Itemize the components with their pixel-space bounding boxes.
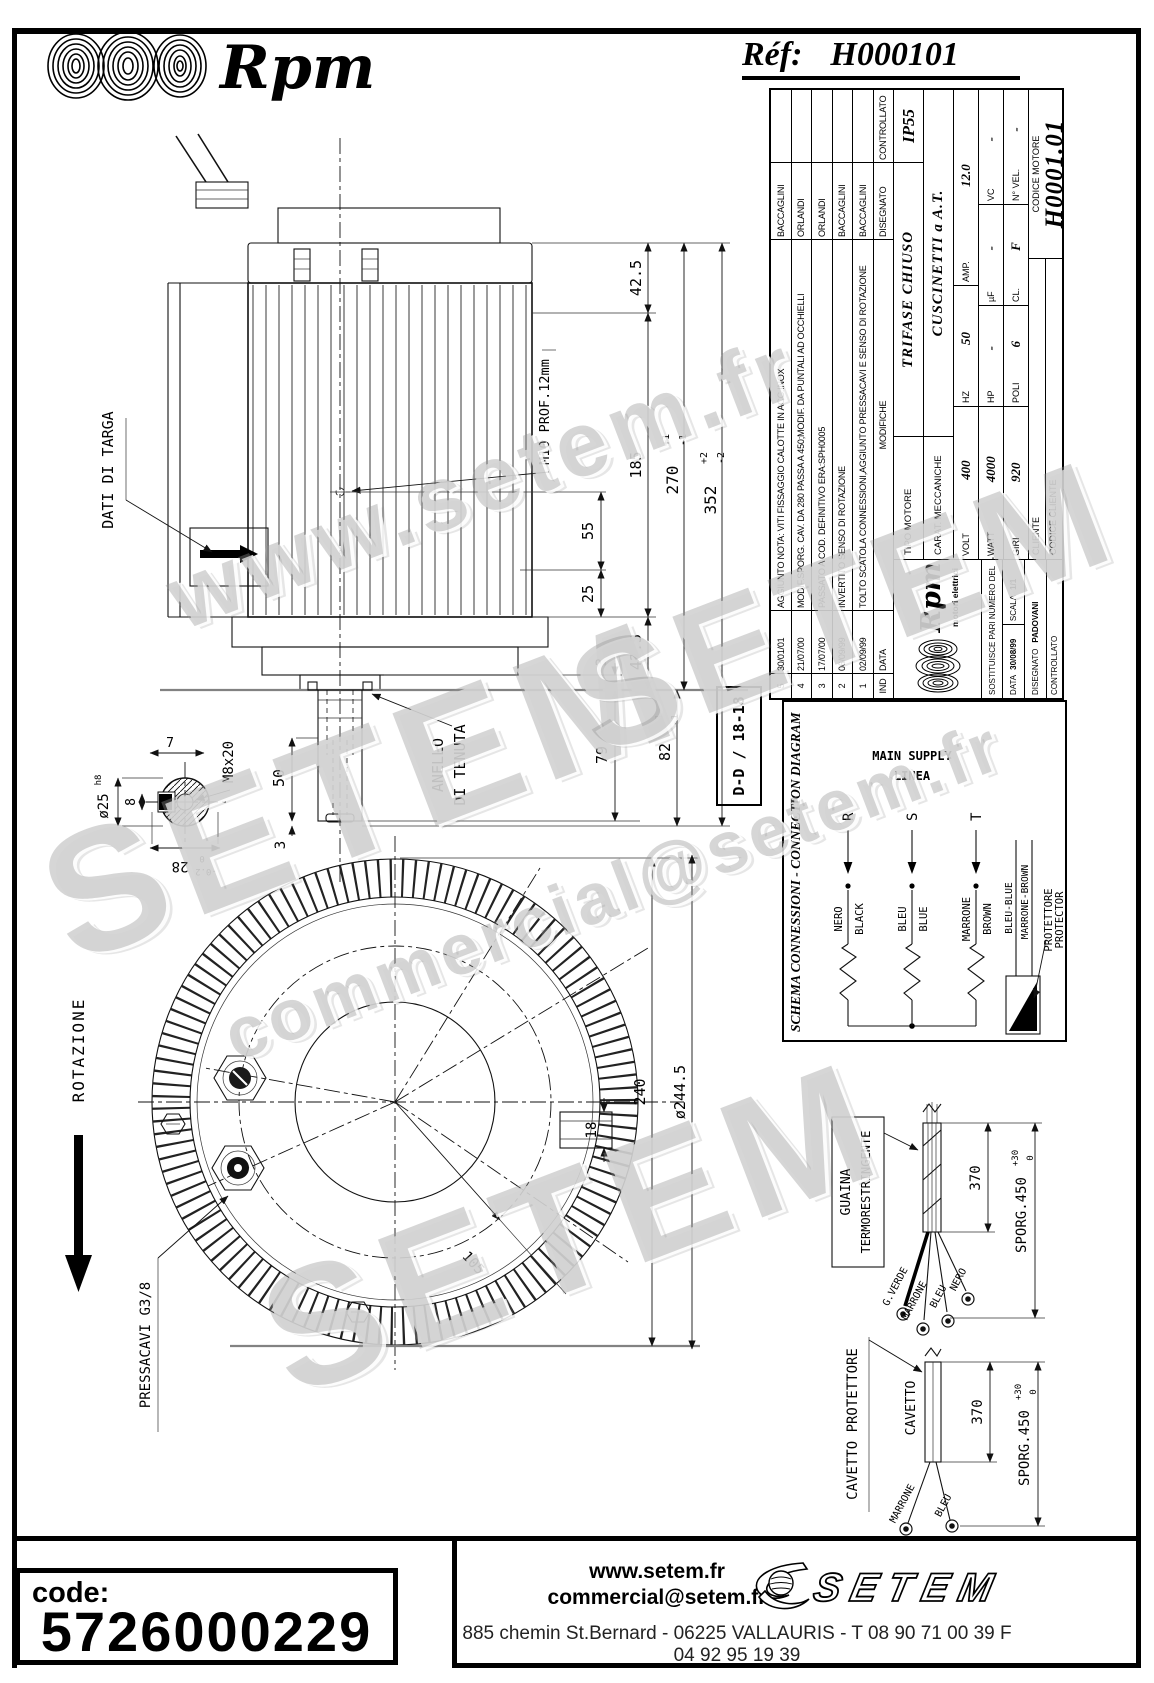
- volt-value: 400: [958, 407, 974, 533]
- scala-value: 1/1: [1009, 579, 1018, 590]
- codice-motore-value: H0001.01: [1041, 120, 1069, 229]
- codice-cliente-cell: CODICE CLIENTE: [1046, 259, 1062, 559]
- rev-desc: TOLTO SCATOLA CONNESSIONI,AGGIUNTO PRESS…: [853, 239, 873, 610]
- shaft-dia-tol: h8: [94, 775, 104, 786]
- poli-label: POLI: [1011, 382, 1021, 406]
- tipo-label: TIPO MOTORE: [894, 436, 923, 559]
- rev-date: 02/09/99: [853, 610, 873, 673]
- shaft-dim-7: 7: [166, 736, 174, 751]
- dim-42-5-bottom: 42.5: [627, 634, 645, 670]
- revision-row: 5 30/01/01 AGGIUNTO NOTA: VITI FISSAGGIO…: [771, 90, 792, 698]
- rev-ind: 1: [853, 673, 873, 698]
- dim-270-sup: +1: [661, 434, 672, 446]
- controllato-label: CONTROLLATO: [1050, 636, 1059, 695]
- amp-label: AMP.: [961, 261, 971, 285]
- codice-motore-label: CODICE MOTORE: [1029, 136, 1041, 213]
- revision-row: 4 21/07/00 MODIF.SPORG. CAV. DA 280 PASS…: [792, 90, 813, 698]
- dim-105: 105: [459, 1249, 488, 1279]
- marrone-brown-label: MARRONE-BROWN: [1020, 865, 1031, 940]
- dim-240: 240: [631, 1078, 649, 1105]
- dim-42-5-top: 42.5: [627, 260, 645, 296]
- uf-label: µF: [986, 291, 996, 305]
- rev-date: 21/07/00: [792, 610, 812, 673]
- cable2-sporg-sup: +30: [1014, 1384, 1024, 1400]
- amp-value: 12.0: [958, 90, 974, 261]
- cable2-sporg: SPORG.450: [1017, 1410, 1033, 1486]
- wire-nero: NERO: [948, 1267, 969, 1293]
- rev-header-by: DISEGNATO: [874, 162, 894, 239]
- giri-label: GIRI: [1011, 537, 1021, 559]
- phase-s: S: [905, 813, 921, 821]
- sostituisce-label: SOSTITUISCE PARI NUMERO DEL: [988, 566, 997, 695]
- rev-date: 17/07/00: [812, 610, 832, 673]
- rev-header-date: DATA: [874, 610, 894, 673]
- footer-address: 885 chemin St.Bernard - 06225 VALLAURIS …: [457, 1623, 1017, 1667]
- shaft-dia: ø25: [96, 793, 112, 818]
- linea-label: LINEA: [894, 769, 931, 783]
- tipo-motore-row: TIPO MOTORE TRIFASE CHIUSO IP55: [894, 90, 924, 559]
- data-cell: DATA 30/08/99: [1003, 624, 1024, 698]
- rev-check: [771, 90, 791, 162]
- dim-352-sub: -2: [716, 452, 727, 464]
- dim-3-flange: 3: [594, 658, 610, 666]
- cable2-wire-marrone: MARRONE: [888, 1483, 918, 1525]
- rev-by: ORLANDI: [792, 162, 812, 239]
- nvel-value: -: [1008, 90, 1024, 169]
- scala-label: SCALA: [1009, 595, 1018, 621]
- section-label-text: D-D / 18-18: [730, 696, 748, 795]
- m10-label: M10 PROF.12mm: [537, 359, 553, 465]
- wire-label-blue: BLUE: [918, 906, 930, 931]
- wire-label-bleu: BLEU: [897, 906, 909, 931]
- shaft-dim-28-sup: 0: [199, 853, 204, 863]
- rev-desc: INVERTITO SENSO DI ROTAZIONE: [833, 239, 853, 610]
- rev-header-ind: IND: [874, 673, 894, 698]
- dim-270: 270: [663, 466, 682, 495]
- titleblock-rpm-sub: motori elettrici: [950, 568, 960, 627]
- cliente-cell: CLIENTE: [1029, 259, 1046, 559]
- rev-date: 06/09/99: [833, 610, 853, 673]
- wire-label-marrone: MARRONE: [961, 897, 973, 941]
- disegnato-value: PADOVANI: [1031, 602, 1040, 643]
- title-block: 5 30/01/01 AGGIUNTO NOTA: VITI FISSAGGIO…: [769, 88, 1064, 700]
- hp-label: HP: [986, 390, 996, 406]
- titleblock-rpm-logo: Rpm motori elettrici: [894, 560, 982, 698]
- rev-ind: 3: [812, 673, 832, 698]
- cable2-sporg-sub: 0: [1029, 1389, 1039, 1394]
- rev-desc: MODIF.SPORG. CAV. DA 280 PASSA A 450;MOD…: [792, 239, 812, 610]
- shaft-detail: ø25 h8 8 7 M8x20 28 0 -0.2: [94, 736, 237, 876]
- drawing-sheet: Rpm Réf: H000101: [0, 0, 1154, 1683]
- protector-label: PROTECTOR: [1054, 891, 1065, 949]
- setem-logo-swoosh: [756, 1563, 809, 1609]
- shaft-dim-28-sub: -0.2: [195, 866, 217, 876]
- rev-ind: 5: [771, 673, 791, 698]
- hz-value: 50: [958, 286, 974, 391]
- cable1-sporg-sub: 0: [1026, 1155, 1036, 1160]
- dim-50: 50: [270, 769, 288, 787]
- dim-244-5: ø244.5: [671, 1065, 689, 1119]
- revision-table: 5 30/01/01 AGGIUNTO NOTA: VITI FISSAGGIO…: [771, 90, 894, 698]
- dim-185: 185: [627, 451, 645, 478]
- rev-desc: PASSATO A COD. DEFINITIVO ERA:SPH0005: [812, 239, 832, 610]
- guaina-label-1: GUAINA: [839, 1168, 854, 1215]
- cliente-label: CLIENTE: [1031, 517, 1041, 555]
- section-label: D-D / 18-18: [716, 686, 762, 806]
- cable-diagram-cavetto: CAVETTO PROTETTORE CAVETTO MARRONE BLEU …: [845, 1337, 1045, 1535]
- connection-diagram: SCHEMA CONNESSIONI - CONNECTION DIAGRAM …: [782, 700, 1067, 1042]
- volt-label: VOLT: [961, 533, 971, 559]
- data-label: DATA: [1009, 675, 1018, 695]
- rev-by: BACCAGLINI: [771, 162, 791, 239]
- revision-row: 3 17/07/00 PASSATO A COD. DEFINITIVO ERA…: [812, 90, 833, 698]
- hp-value: -: [983, 306, 999, 390]
- titleblock-rpm-text: Rpm: [916, 563, 947, 633]
- watt-value: 4000: [983, 407, 999, 532]
- watt-label: WATT: [986, 532, 996, 560]
- phase-t: T: [969, 812, 985, 821]
- titleblock-rpm-coils: [914, 637, 962, 695]
- rev-header-check: CONTROLLATO: [874, 90, 894, 162]
- carat-value: CUSCINETTI a A.T.: [924, 90, 953, 436]
- cl-value: F: [1008, 205, 1024, 288]
- dim-82-sub: -1: [670, 714, 681, 726]
- sostituisce-cell: SOSTITUISCE PARI NUMERO DEL -: [982, 560, 1003, 698]
- cavetto-label: CAVETTO: [904, 1380, 919, 1435]
- front-view: 18 240 ø244.5 105 ROTAZIONE PRESSACAVI G…: [65, 836, 700, 1432]
- shaft-dim-8: 8: [124, 798, 139, 806]
- dim-25: 25: [579, 585, 597, 603]
- cable2-dim-370: 370: [970, 1399, 986, 1424]
- cable1-sporg-sup: +30: [1011, 1150, 1021, 1166]
- dim-352: 352: [701, 486, 720, 515]
- rev-desc: AGGIUNTO NOTA: VITI FISSAGGIO CALOTTE IN…: [771, 239, 791, 610]
- giri-row: GIRI920 POLI6 CL.F N° VEL.-: [1004, 90, 1029, 559]
- rev-ind: 2: [833, 673, 853, 698]
- rev-date: 30/01/01: [771, 610, 791, 673]
- dim-352-sup: +2: [699, 452, 710, 464]
- dim-79: 79: [593, 746, 611, 764]
- revision-row: 1 02/09/99 TOLTO SCATOLA CONNESSIONI,AGG…: [853, 90, 874, 698]
- dim-270-sub: -1: [678, 434, 689, 446]
- controllato-cell: CONTROLLATO: [1047, 560, 1062, 698]
- cavetto-protettore-label: CAVETTO PROTETTORE: [845, 1348, 861, 1500]
- hz-label: HZ: [961, 391, 971, 406]
- poli-value: 6: [1008, 306, 1024, 382]
- shaft-dim-28: 28: [172, 858, 189, 874]
- guaina-label-2: TERMORESTRINGENTE: [859, 1131, 873, 1254]
- rev-check: [792, 90, 812, 162]
- rev-check: [833, 90, 853, 162]
- connection-title: SCHEMA CONNESSIONI - CONNECTION DIAGRAM: [788, 711, 803, 1032]
- rev-header-desc: MODIFICHE: [874, 239, 894, 610]
- cable-diagram-guaina: GUAINA TERMORESTRINGENTE: [832, 1102, 1045, 1335]
- codice-motore-cell: CODICE MOTORE H0001.01: [1029, 90, 1062, 258]
- rev-by: BACCAGLINI: [853, 162, 873, 239]
- uf-value: -: [983, 205, 999, 291]
- cable-gland-2: [212, 1146, 264, 1190]
- revision-row: 2 06/09/99 INVERTITO SENSO DI ROTAZIONE …: [833, 90, 854, 698]
- anello-label-2: DI TENUTA: [451, 724, 469, 805]
- revision-header-row: IND DATA MODIFICHE DISEGNATO CONTROLLATO: [874, 90, 894, 698]
- dim-82: 82: [656, 743, 674, 761]
- vc-label: VC: [986, 188, 996, 204]
- cl-label: CL.: [1011, 288, 1021, 305]
- rev-ind: 4: [792, 673, 812, 698]
- pressacavi-label: PRESSACAVI G3/8: [138, 1282, 154, 1408]
- vc-value: -: [983, 90, 999, 188]
- data-value: 30/08/99: [1009, 639, 1018, 670]
- watt-row: WATT4000 HP- µF- VC-: [979, 90, 1004, 559]
- address-box: www.setem.fr commercial@setem.fr 885 che…: [452, 1541, 1139, 1668]
- phase-r: R: [841, 812, 857, 821]
- dim-3-shaft: 3: [273, 841, 289, 849]
- main-supply-label: MAIN SUPPLY: [872, 749, 952, 763]
- bleu-blue-label: BLEU-BLUE: [1004, 882, 1015, 934]
- cable1-dim-370: 370: [968, 1165, 984, 1190]
- volt-row: VOLT400 HZ50 AMP.12.0: [954, 90, 979, 559]
- disegnato-cell: DISEGNATO PADOVANI: [1025, 560, 1047, 698]
- giri-value: 920: [1008, 407, 1024, 537]
- scala-cell: SCALA 1/1: [1003, 560, 1024, 624]
- rev-by: BACCAGLINI: [833, 162, 853, 239]
- ip-rating: IP55: [894, 90, 923, 163]
- disegnato-label: DISEGNATO: [1031, 649, 1040, 695]
- wire-label-brown: BROWN: [982, 903, 994, 935]
- tipo-value: TRIFASE CHIUSO: [894, 163, 923, 436]
- code-box: code: 5726000229: [15, 1568, 398, 1665]
- rev-check: [853, 90, 873, 162]
- dim-18: 18: [584, 1122, 600, 1139]
- rev-by: ORLANDI: [812, 162, 832, 239]
- codice-cliente-label: CODICE CLIENTE: [1048, 479, 1058, 555]
- dim-55: 55: [579, 522, 597, 540]
- wire-label-black: BLACK: [854, 903, 866, 935]
- code-value: 5726000229: [20, 1599, 393, 1664]
- dim-82-sup: +1: [654, 714, 665, 726]
- cable-gland-1: [214, 1056, 266, 1100]
- dati-di-targa-label: DATI DI TARGA: [99, 411, 117, 528]
- setem-logo: SETEM: [745, 1557, 1125, 1617]
- shaft-m8: M8x20: [221, 741, 237, 783]
- anello-label-1: ANELLO: [429, 738, 447, 792]
- rotazione-label: ROTAZIONE: [69, 998, 88, 1103]
- cable2-wire-bleu: BLEU: [933, 1493, 954, 1519]
- setem-logo-text: SETEM: [810, 1564, 1007, 1609]
- rev-check: [812, 90, 832, 162]
- wire-label-nero: NERO: [833, 906, 845, 931]
- carat-meccaniche-row: CARAT. MECCANICHE CUSCINETTI a A.T.: [924, 90, 954, 559]
- nvel-label: N° VEL.: [1011, 169, 1021, 204]
- carat-label: CARAT. MECCANICHE: [924, 436, 953, 559]
- cable1-sporg: SPORG.450: [1014, 1177, 1030, 1253]
